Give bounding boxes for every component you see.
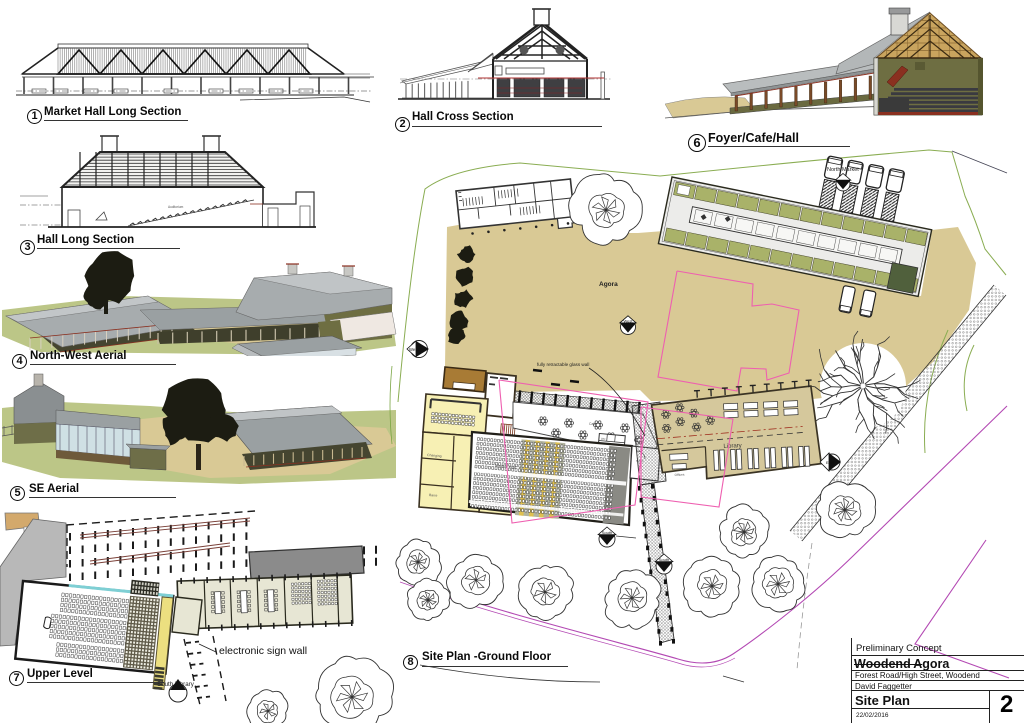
svg-text:South: South (659, 557, 669, 562)
svg-text:East: East (826, 460, 835, 465)
svg-text:WC: WC (601, 437, 606, 441)
svg-text:South: South (602, 530, 612, 535)
svg-text:Barre: Barre (429, 493, 438, 498)
svg-text:Agora: Agora (599, 281, 618, 288)
svg-text:West: West (409, 347, 419, 352)
svg-text:West: West (623, 318, 633, 323)
svg-text:Auditorium: Auditorium (168, 205, 184, 209)
svg-text:Cafe: Cafe (589, 422, 596, 426)
svg-text:Offices: Offices (675, 473, 685, 477)
svg-text:North Market: North Market (827, 167, 859, 173)
svg-text:fully retractable glass wall: fully retractable glass wall (537, 362, 589, 367)
